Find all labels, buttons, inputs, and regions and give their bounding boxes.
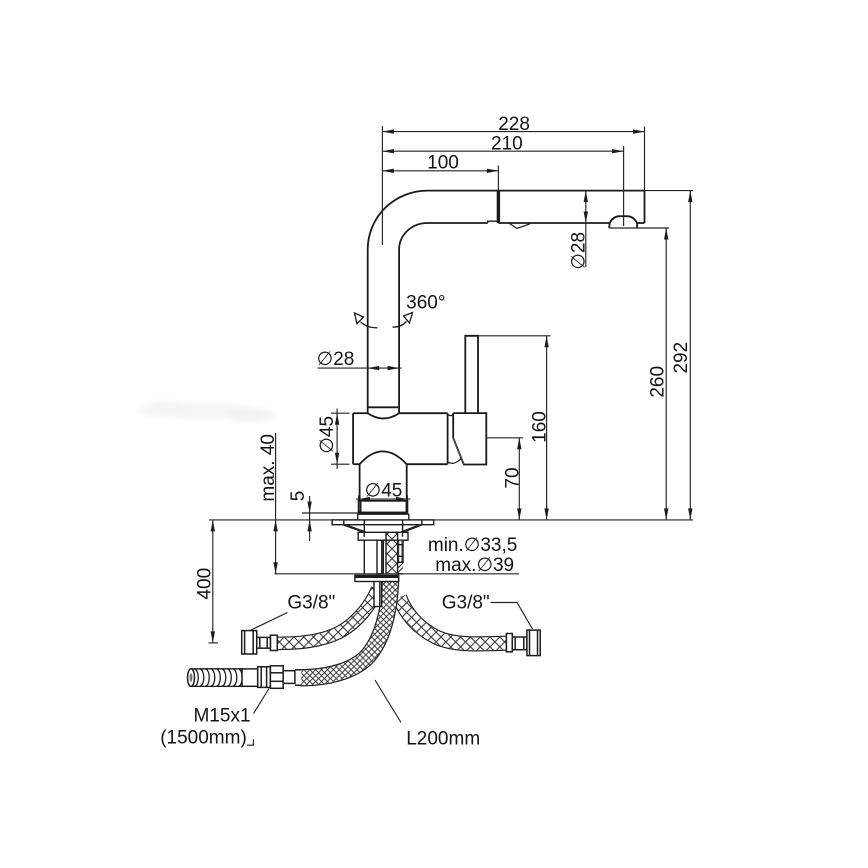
- svg-text:400: 400: [195, 568, 216, 600]
- svg-text:∅28: ∅28: [569, 232, 590, 270]
- svg-text:160: 160: [529, 411, 550, 443]
- svg-text:∅45: ∅45: [365, 481, 403, 502]
- svg-text:∅28: ∅28: [317, 349, 355, 370]
- svg-text:210: 210: [491, 133, 523, 154]
- svg-text:G3/8": G3/8": [287, 593, 335, 614]
- svg-text:360°: 360°: [406, 293, 445, 314]
- svg-text:260: 260: [647, 366, 668, 398]
- svg-text:100: 100: [427, 152, 459, 173]
- svg-text:max.∅39: max.∅39: [435, 555, 514, 576]
- svg-text:G3/8": G3/8": [442, 593, 490, 614]
- svg-text:292: 292: [671, 342, 692, 374]
- svg-text:L200mm: L200mm: [406, 729, 480, 750]
- svg-text:228: 228: [498, 114, 530, 135]
- svg-text:M15x1: M15x1: [193, 706, 250, 727]
- svg-text:∅45: ∅45: [317, 416, 338, 454]
- svg-text:max. 40: max. 40: [258, 434, 279, 502]
- svg-text:min.∅33,5: min.∅33,5: [428, 535, 517, 556]
- svg-text:5: 5: [288, 491, 309, 502]
- svg-text:70: 70: [503, 467, 524, 488]
- svg-text:(1500mm): (1500mm): [160, 728, 247, 749]
